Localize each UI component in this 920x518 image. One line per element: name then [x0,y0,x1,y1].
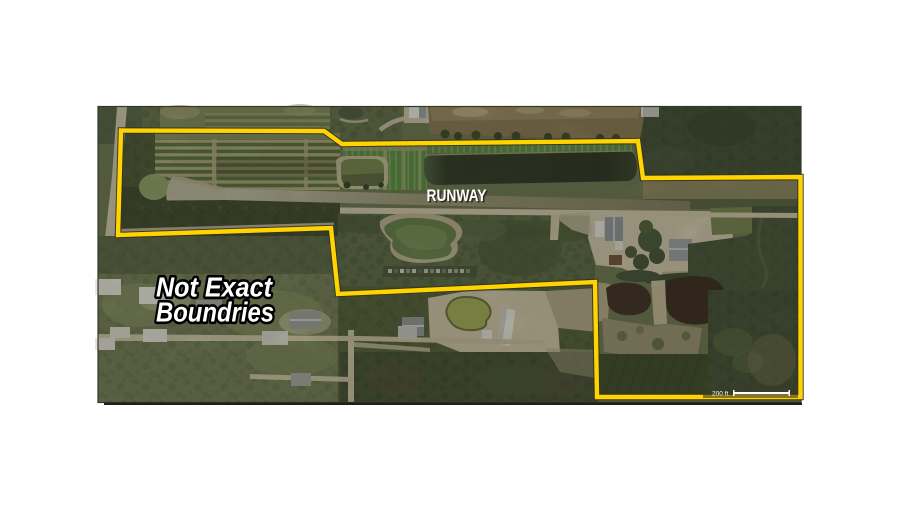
svg-text:RUNWAY: RUNWAY [427,187,487,205]
svg-text:Boundries: Boundries [156,297,274,328]
svg-text:200 ft: 200 ft [712,391,728,398]
